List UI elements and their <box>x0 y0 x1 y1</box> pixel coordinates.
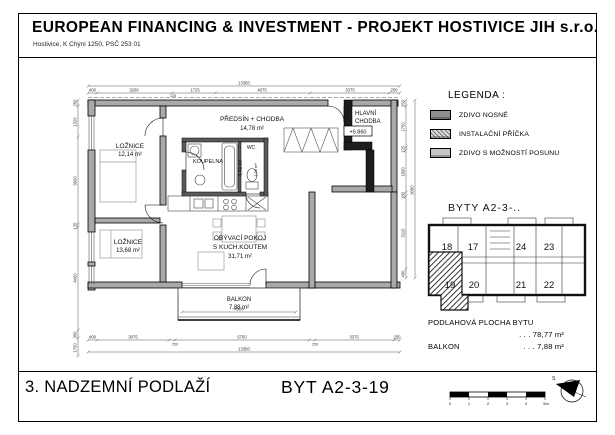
floor-plan: LOŽNICE 12,14 m² PŘEDSÍN + CHODBA 14,78 … <box>73 81 417 358</box>
room-predsin: PŘEDSÍN + CHODBA <box>220 114 285 123</box>
balcony <box>178 288 300 320</box>
dim: 400 <box>401 270 406 278</box>
floor-area-value: . . . 78,77 m² <box>428 330 564 339</box>
balcony-area-label: BALKON <box>428 342 460 351</box>
scale-bar: 0 1 2 3 4 5m <box>449 392 550 406</box>
dim: 3115 <box>401 228 406 238</box>
room-koupelna: KOUPELNA <box>193 159 223 165</box>
dim: 250 <box>394 335 402 340</box>
scale-tick-labels: 0 1 2 3 4 5m <box>449 401 550 406</box>
unit-24: 24 <box>516 242 527 253</box>
room-loznice2-area: 13,68 m² <box>116 248 140 254</box>
dim: 400 <box>89 88 97 93</box>
unit-20: 20 <box>469 280 480 291</box>
unit-23: 23 <box>544 242 555 253</box>
dim: 3075 <box>128 335 138 340</box>
legend-item-zdivo-nosne: ZDIVO NOSNÉ <box>430 110 600 120</box>
dim: 5750 <box>237 335 247 340</box>
unit-18: 18 <box>442 242 453 253</box>
scale-tick: 3 <box>506 401 509 406</box>
dim: 250 <box>73 99 78 107</box>
scale-tick: 2 <box>487 401 490 406</box>
dim: 4075 <box>257 88 267 93</box>
room-balkon: BALKON <box>227 297 251 303</box>
unit-22: 22 <box>544 280 555 291</box>
legend-label: ZDIVO S MOŽNOSTÍ POSUNU <box>459 150 560 157</box>
legend-swatch-solid-dark <box>430 110 451 120</box>
dim: 250 <box>172 343 178 347</box>
room-loznice2: LOŽNICE <box>114 237 143 246</box>
area-table: PODLAHOVÁ PLOCHA BYTU . . . 78,77 m² BAL… <box>428 318 564 351</box>
room-loznice1-area: 12,14 m² <box>118 152 142 158</box>
unit-17: 17 <box>468 242 479 253</box>
dim-bottom-overall: 13350 <box>238 347 250 352</box>
keyplan-title: BYTY A2-3-.. <box>448 202 521 214</box>
dim: 125 <box>73 222 78 230</box>
corridor-label-2: CHODBA <box>355 119 381 125</box>
room-koupelna-area: 4,41 m² <box>238 159 244 176</box>
dim: 1325 <box>73 117 78 127</box>
dim: 1800 <box>401 167 406 177</box>
dim: 1750 <box>73 343 78 353</box>
scale-tick: 4 <box>525 401 528 406</box>
scale-tick: 1 <box>468 401 471 406</box>
north-label: S <box>552 376 556 382</box>
dim: 250 <box>401 99 406 107</box>
dim: 350 <box>73 331 78 339</box>
room-obyvaci-area: 31,71 m² <box>228 254 252 260</box>
legend-item-instalacni-pricka: INSTALAČNÍ PŘÍČKA <box>430 129 600 139</box>
dim-right-overall: 9080 <box>410 185 415 195</box>
dim-balcony: 4300 <box>234 307 244 312</box>
room-loznice1: LOŽNICE <box>116 141 145 150</box>
legend-label: ZDIVO NOSNÉ <box>459 112 508 119</box>
dim: 3375 <box>345 88 355 93</box>
balcony-area-value: . . . 7,88 m² <box>523 342 564 351</box>
dim: 1725 <box>190 88 200 93</box>
key-plan: BYTY A2-3-.. 18 17 24 23 19 20 21 22 <box>429 202 585 310</box>
room-wc: WC <box>247 145 256 151</box>
room-wc-area: 1,55 m² <box>253 163 258 177</box>
dim-top-overall: 13350 <box>238 81 250 86</box>
dim: 400 <box>89 335 97 340</box>
dim: 125 <box>170 94 176 98</box>
legend-title: LEGENDA : <box>448 90 600 101</box>
legend-swatch-hatch <box>430 129 451 139</box>
room-predsin-area: 14,78 m² <box>240 126 264 132</box>
dim: 1750 <box>401 122 406 132</box>
wardrobe <box>284 128 338 152</box>
dim: 3375 <box>349 335 359 340</box>
drawing-canvas: LOŽNICE 12,14 m² PŘEDSÍN + CHODBA 14,78 … <box>0 0 615 435</box>
dim: 180 <box>401 191 406 199</box>
floor-title: 3. NADZEMNÍ PODLAŽÍ <box>25 378 210 397</box>
dim: 125 <box>401 145 406 153</box>
dim: 3200 <box>129 88 139 93</box>
legend-label: INSTALAČNÍ PŘÍČKA <box>459 131 529 138</box>
unit-title: BYT A2-3-19 <box>281 377 390 398</box>
unit-19: 19 <box>445 280 456 291</box>
legend-item-zdivo-posun: ZDIVO S MOŽNOSTÍ POSUNU <box>430 148 600 158</box>
dim: 4400 <box>73 273 78 283</box>
north-arrow-icon: S <box>552 376 586 402</box>
unit-21: 21 <box>516 280 527 291</box>
dim: 250 <box>391 88 399 93</box>
legend: LEGENDA : ZDIVO NOSNÉ INSTALAČNÍ PŘÍČKA … <box>430 90 600 167</box>
scale-tick: 0 <box>449 401 452 406</box>
level-mark: +5.860 <box>350 130 367 136</box>
room-obyvaci-1: OBÝVACÍ POKOJ <box>214 233 266 242</box>
floor-area-label: PODLAHOVÁ PLOCHA BYTU <box>428 318 564 327</box>
room-obyvaci-2: S KUCH.KOUTEM <box>213 244 267 251</box>
dim: 250 <box>312 343 318 347</box>
dim: 3600 <box>73 176 78 186</box>
legend-swatch-solid-light <box>430 148 451 158</box>
scale-tick: 5m <box>543 401 549 406</box>
corridor-label-1: HLAVNÍ <box>355 110 377 117</box>
